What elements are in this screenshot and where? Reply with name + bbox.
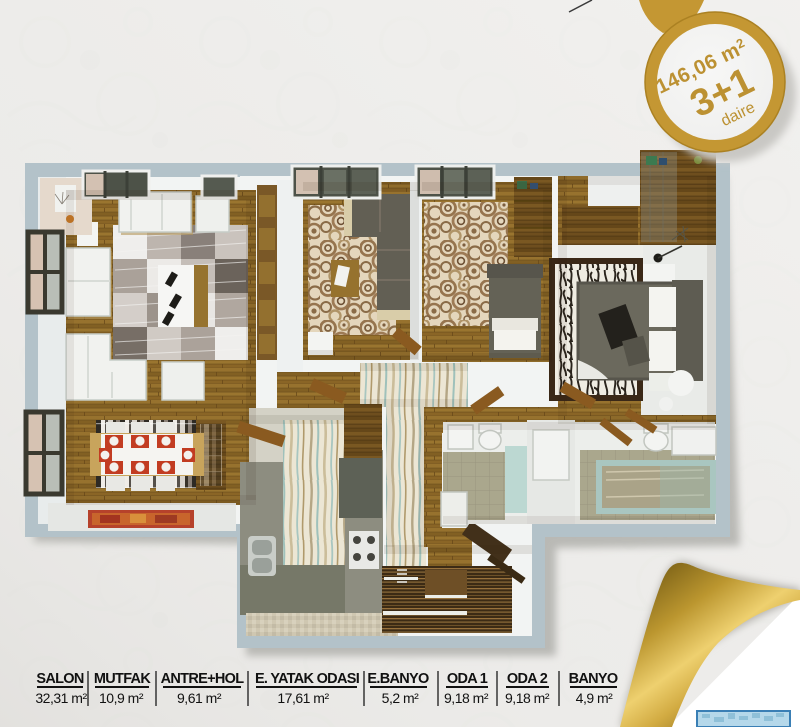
- svg-text:10,9 m²: 10,9 m²: [99, 690, 144, 706]
- svg-text:E. YATAK ODASI: E. YATAK ODASI: [255, 671, 360, 687]
- svg-text:MUTFAK: MUTFAK: [94, 671, 151, 687]
- svg-text:ODA 1: ODA 1: [447, 671, 488, 687]
- svg-text:9,61 m²: 9,61 m²: [177, 690, 222, 706]
- svg-text:BANYO: BANYO: [569, 671, 618, 687]
- svg-text:5,2 m²: 5,2 m²: [382, 690, 420, 706]
- svg-text:17,61 m²: 17,61 m²: [277, 690, 329, 706]
- svg-text:E.BANYO: E.BANYO: [367, 671, 429, 687]
- svg-text:ODA 2: ODA 2: [507, 671, 548, 687]
- svg-text:SALON: SALON: [36, 671, 83, 687]
- svg-text:4,9 m²: 4,9 m²: [576, 690, 614, 706]
- svg-text:9,18 m²: 9,18 m²: [444, 690, 489, 706]
- svg-text:9,18 m²: 9,18 m²: [505, 690, 550, 706]
- svg-text:32,31 m²: 32,31 m²: [35, 690, 87, 706]
- svg-text:ANTRE+HOL: ANTRE+HOL: [161, 671, 245, 687]
